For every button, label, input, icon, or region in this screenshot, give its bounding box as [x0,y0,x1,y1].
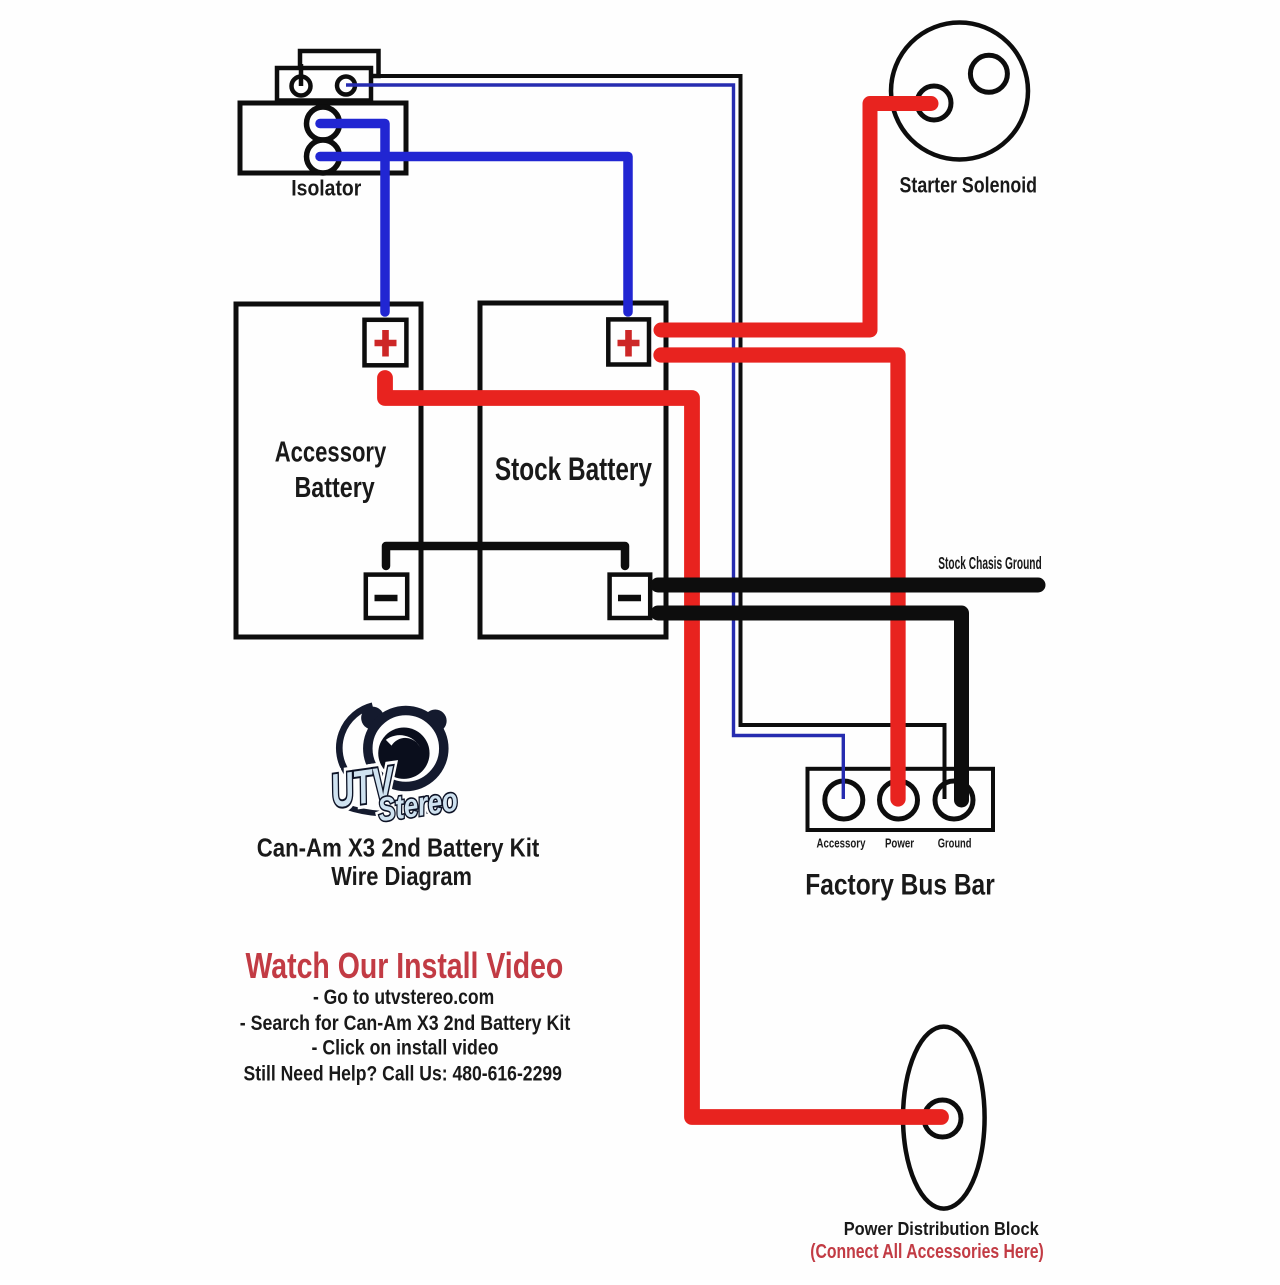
svg-text:Accessory: Accessory [817,837,866,851]
svg-text:Can-Am X3 2nd Battery Kit: Can-Am X3 2nd Battery Kit [257,833,540,863]
svg-text:Stock Chasis Ground: Stock Chasis Ground [938,553,1042,573]
svg-text:- Search for Can-Am X3 2nd Bat: - Search for Can-Am X3 2nd Battery Kit [240,1011,571,1035]
svg-text:Isolator: Isolator [291,176,361,201]
svg-text:- Go to utvstereo.com: - Go to utvstereo.com [313,985,494,1009]
svg-text:Ground: Ground [938,837,972,851]
svg-text:- Click on install video: - Click on install video [312,1036,499,1060]
svg-text:Stock Battery: Stock Battery [495,451,652,487]
svg-text:Battery: Battery [294,472,374,504]
svg-text:Accessory: Accessory [275,437,387,469]
svg-text:Watch Our Install Video: Watch Our Install Video [246,945,564,986]
svg-text:Power Distribution Block: Power Distribution Block [844,1218,1040,1239]
svg-text:Starter Solenoid: Starter Solenoid [900,173,1038,198]
svg-text:Still Need Help? Call Us: 480-: Still Need Help? Call Us: 480-616-2299 [244,1062,562,1086]
svg-text:Wire Diagram: Wire Diagram [331,861,472,891]
svg-text:Factory Bus Bar: Factory Bus Bar [805,869,995,902]
svg-text:Power: Power [885,837,914,851]
svg-text:(Connect All Accessories Here): (Connect All Accessories Here) [810,1241,1044,1263]
